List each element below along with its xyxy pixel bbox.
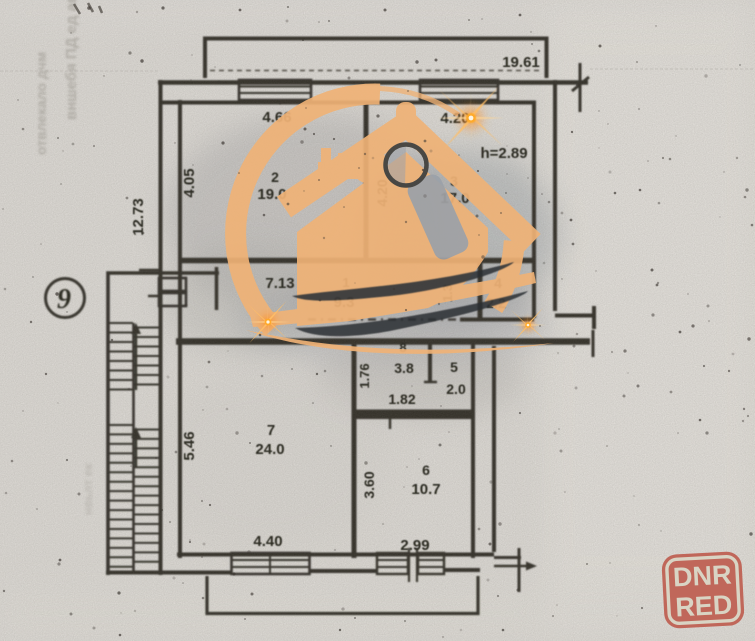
svg-text:RED: RED [675, 590, 734, 623]
svg-text:DNR: DNR [672, 560, 732, 593]
